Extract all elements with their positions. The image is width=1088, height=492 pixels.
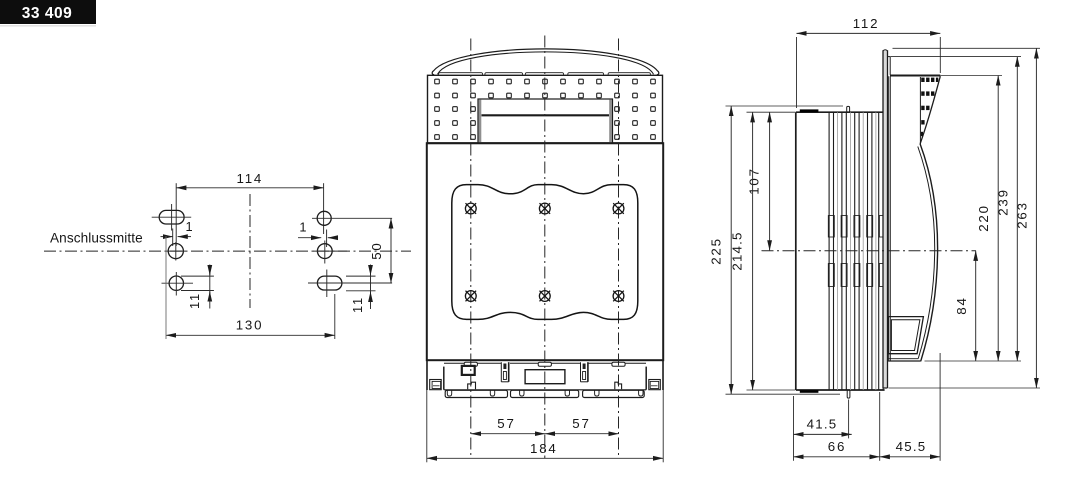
svg-text:1: 1 bbox=[299, 220, 308, 235]
svg-text:1: 1 bbox=[186, 219, 195, 234]
svg-text:130: 130 bbox=[236, 317, 264, 332]
svg-text:84: 84 bbox=[954, 296, 969, 314]
svg-text:184: 184 bbox=[530, 441, 558, 456]
svg-text:220: 220 bbox=[976, 204, 991, 232]
svg-text:112: 112 bbox=[853, 16, 880, 31]
svg-text:57: 57 bbox=[572, 416, 590, 431]
svg-text:107: 107 bbox=[747, 167, 762, 195]
svg-text:11: 11 bbox=[350, 296, 365, 313]
svg-text:45.5: 45.5 bbox=[896, 439, 927, 454]
svg-text:263: 263 bbox=[1015, 201, 1030, 229]
svg-text:214.5: 214.5 bbox=[730, 231, 745, 270]
svg-text:66: 66 bbox=[828, 439, 846, 454]
svg-text:33 409: 33 409 bbox=[22, 5, 72, 22]
svg-text:114: 114 bbox=[236, 171, 263, 186]
svg-text:57: 57 bbox=[497, 416, 515, 431]
svg-text:Anschlussmitte: Anschlussmitte bbox=[50, 231, 143, 246]
svg-text:11: 11 bbox=[187, 292, 202, 309]
svg-text:41.5: 41.5 bbox=[807, 416, 838, 431]
svg-text:225: 225 bbox=[708, 237, 723, 265]
svg-text:50: 50 bbox=[369, 241, 384, 259]
svg-text:239: 239 bbox=[995, 188, 1010, 216]
